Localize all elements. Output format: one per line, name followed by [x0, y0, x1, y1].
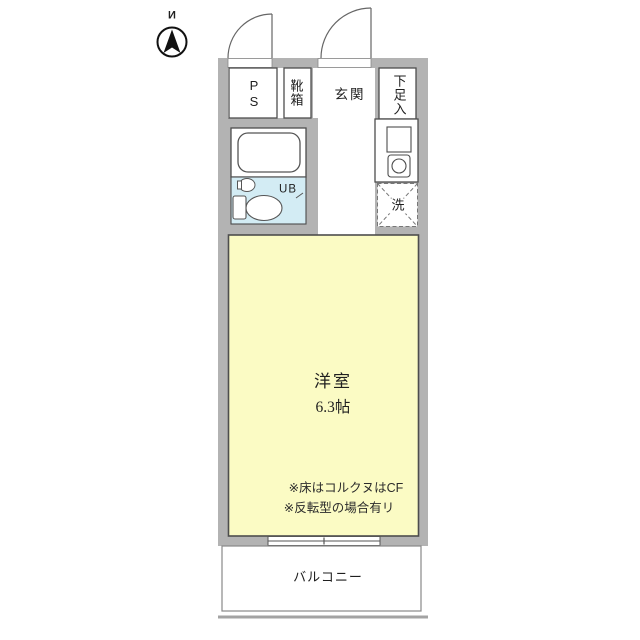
unit-bath-label: UB [279, 183, 297, 196]
toilet-icon [233, 196, 282, 221]
meterbox-door-arc-icon [228, 14, 272, 58]
floor-plan-drawing [0, 0, 640, 640]
entrance-door-arc-icon [321, 8, 371, 58]
compass-icon [158, 28, 187, 57]
room-size-label: 6.3帖 [316, 399, 351, 417]
wall-left [218, 58, 228, 546]
stove-burner-icon [388, 155, 410, 177]
bathtub-icon [238, 133, 300, 172]
wall-right [418, 58, 428, 546]
ps-label: PS [246, 78, 261, 110]
room-name-label: 洋室 [314, 372, 352, 392]
floor-note: ※床はコルクヌはCF [289, 481, 404, 495]
door-arcs [228, 8, 371, 58]
laundry-label: 洗 [389, 199, 406, 214]
floor-plan: И PS 靴箱 玄関 下足入 UB 洗 洋室 6.3帖 ※床はコルクヌはCF ※… [0, 0, 640, 640]
sliding-window-icon [268, 537, 380, 546]
kitchen-counter [375, 119, 418, 182]
bath-block [231, 128, 306, 224]
balcony-label: バルコニー [293, 571, 363, 586]
north-label: И [168, 10, 176, 23]
shoe-box-label: 靴箱 [288, 79, 303, 107]
shoe-storage-label: 下足入 [391, 74, 406, 116]
entrance-label: 玄関 [335, 87, 366, 103]
mirror-note: ※反転型の場合有リ [284, 501, 394, 515]
kitchen-sink-icon [387, 127, 411, 152]
